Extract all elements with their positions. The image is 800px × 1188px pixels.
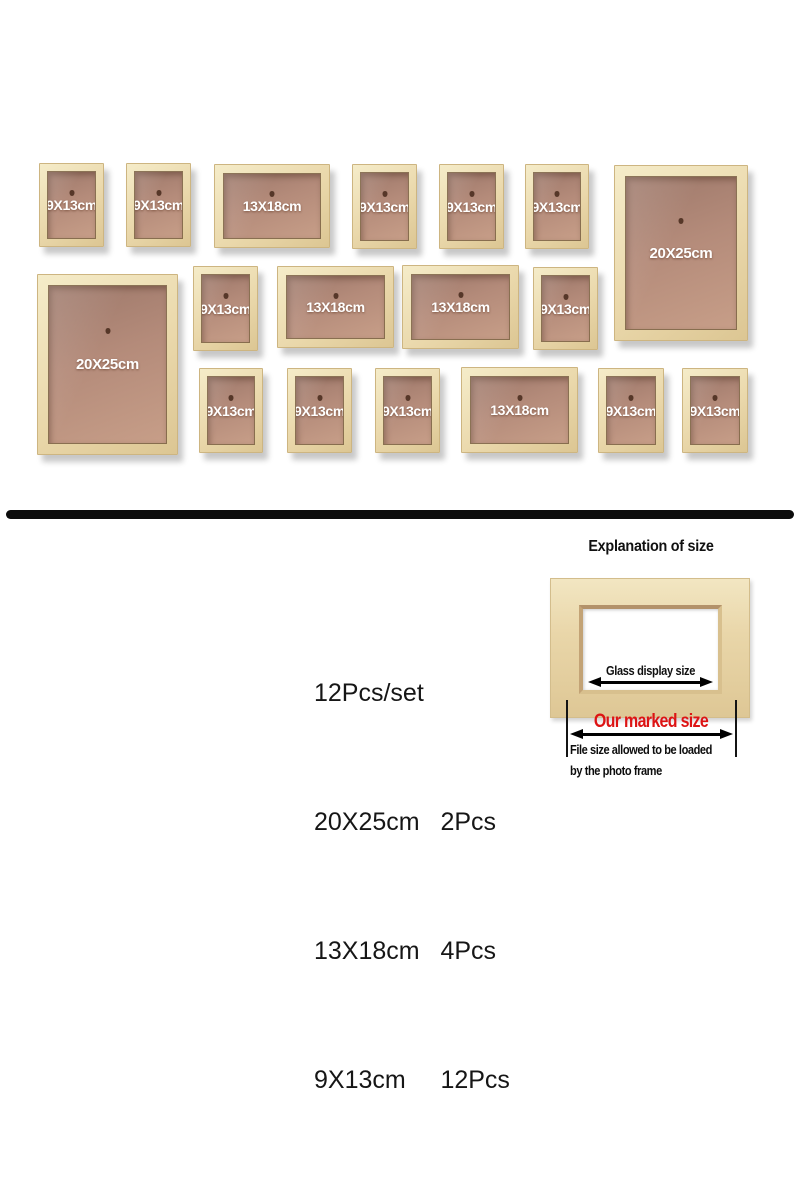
photo-frame: 20X25cm: [37, 274, 178, 455]
file-size-note: File size allowed to be loaded by the ph…: [570, 739, 740, 781]
glass-width-arrow: [588, 676, 713, 688]
frame-size-label: 13X18cm: [306, 299, 365, 315]
keyhole-mark-icon: [555, 191, 560, 197]
photo-frame: 9X13cm: [525, 164, 589, 249]
photo-frame: 9X13cm: [375, 368, 440, 453]
photo-frame: 9X13cm: [193, 266, 258, 351]
keyhole-mark-icon: [382, 191, 387, 197]
frame-backing: 13X18cm: [224, 174, 320, 238]
photo-frame: 20X25cm: [614, 165, 748, 341]
frame-size-label: 13X18cm: [431, 299, 490, 315]
frame-backing: 9X13cm: [607, 377, 655, 444]
frame-size-label: 9X13cm: [534, 199, 580, 215]
photo-frame: 9X13cm: [439, 164, 504, 249]
frame-backing: 9X13cm: [448, 173, 495, 240]
set-summary: 12Pcs/set 20X25cm 2Pcs 13X18cm 4Pcs 9X13…: [314, 586, 510, 1188]
summary-line-20x25: 20X25cm 2Pcs: [314, 801, 510, 844]
keyhole-mark-icon: [156, 190, 161, 196]
summary-line-13x18: 13X18cm 4Pcs: [314, 930, 510, 973]
arrow-shaft: [583, 733, 720, 736]
file-size-note-line1: File size allowed to be loaded: [570, 739, 740, 760]
keyhole-mark-icon: [69, 190, 74, 196]
photo-frame: 13X18cm: [461, 367, 578, 453]
arrowhead-right-icon: [700, 677, 713, 687]
frame-size-label: 9X13cm: [384, 403, 431, 419]
frame-backing: 9X13cm: [202, 275, 249, 342]
frame-backing: 9X13cm: [384, 377, 431, 444]
keyhole-mark-icon: [223, 293, 228, 299]
photo-frame: 13X18cm: [277, 266, 394, 348]
photo-frame: 13X18cm: [214, 164, 330, 248]
frame-size-label: 9X13cm: [48, 197, 95, 213]
keyhole-mark-icon: [270, 191, 275, 197]
photo-frame: 9X13cm: [352, 164, 417, 249]
frame-size-label: 13X18cm: [243, 198, 302, 214]
keyhole-mark-icon: [517, 395, 522, 401]
photo-frame: 9X13cm: [682, 368, 748, 453]
frame-size-label: 9X13cm: [361, 199, 408, 215]
frame-size-label: 9X13cm: [448, 199, 495, 215]
frame-backing: 13X18cm: [471, 377, 568, 443]
size-diagram-frame: Glass display size: [550, 578, 750, 718]
frame-size-label: 9X13cm: [296, 403, 343, 419]
arrow-shaft: [601, 681, 700, 684]
section-divider: [6, 510, 794, 519]
product-image-canvas: 9X13cm9X13cm13X18cm9X13cm9X13cm9X13cm20X…: [0, 0, 800, 800]
keyhole-mark-icon: [679, 218, 684, 224]
keyhole-mark-icon: [469, 191, 474, 197]
frame-size-label: 13X18cm: [490, 402, 549, 418]
frame-size-label: 9X13cm: [607, 403, 655, 419]
frame-size-label: 9X13cm: [542, 301, 589, 317]
frame-size-label: 9X13cm: [208, 403, 254, 419]
frame-backing: 9X13cm: [296, 377, 343, 444]
keyhole-mark-icon: [458, 292, 463, 298]
photo-frame: 9X13cm: [287, 368, 352, 453]
frame-size-label: 9X13cm: [691, 403, 739, 419]
summary-line-9x13: 9X13cm 12Pcs: [314, 1059, 510, 1102]
measure-line-left: [566, 700, 568, 757]
keyhole-mark-icon: [713, 395, 718, 401]
summary-line-set: 12Pcs/set: [314, 672, 510, 715]
keyhole-mark-icon: [105, 328, 110, 334]
photo-frame: 9X13cm: [533, 267, 598, 350]
photo-frame: 9X13cm: [39, 163, 104, 247]
keyhole-mark-icon: [629, 395, 634, 401]
glass-area: Glass display size: [579, 605, 722, 694]
frame-backing: 9X13cm: [691, 377, 739, 444]
frame-size-label: 20X25cm: [650, 245, 713, 262]
keyhole-mark-icon: [405, 395, 410, 401]
file-size-note-line2: by the photo frame: [570, 760, 740, 781]
photo-frame: 9X13cm: [126, 163, 191, 247]
frame-backing: 9X13cm: [542, 276, 589, 341]
arrowhead-left-icon: [588, 677, 601, 687]
photo-frame: 9X13cm: [598, 368, 664, 453]
explanation-title: Explanation of size: [574, 538, 729, 556]
frame-backing: 13X18cm: [287, 276, 384, 338]
frame-backing: 9X13cm: [208, 377, 254, 444]
arrowhead-left-icon: [570, 729, 583, 739]
keyhole-mark-icon: [229, 395, 234, 401]
frame-size-label: 20X25cm: [76, 356, 139, 373]
photo-frame: 13X18cm: [402, 265, 519, 349]
frame-backing: 9X13cm: [534, 173, 580, 240]
keyhole-mark-icon: [563, 294, 568, 300]
arrowhead-right-icon: [720, 729, 733, 739]
frame-backing: 9X13cm: [361, 173, 408, 240]
keyhole-mark-icon: [333, 293, 338, 299]
keyhole-mark-icon: [317, 395, 322, 401]
frame-size-label: 9X13cm: [202, 301, 249, 317]
frame-backing: 9X13cm: [135, 172, 182, 238]
frame-backing: 9X13cm: [48, 172, 95, 238]
photo-frame: 9X13cm: [199, 368, 263, 453]
frame-backing: 20X25cm: [626, 177, 736, 329]
frame-backing: 20X25cm: [49, 286, 166, 443]
frame-backing: 13X18cm: [412, 275, 509, 339]
frame-size-label: 9X13cm: [135, 197, 182, 213]
